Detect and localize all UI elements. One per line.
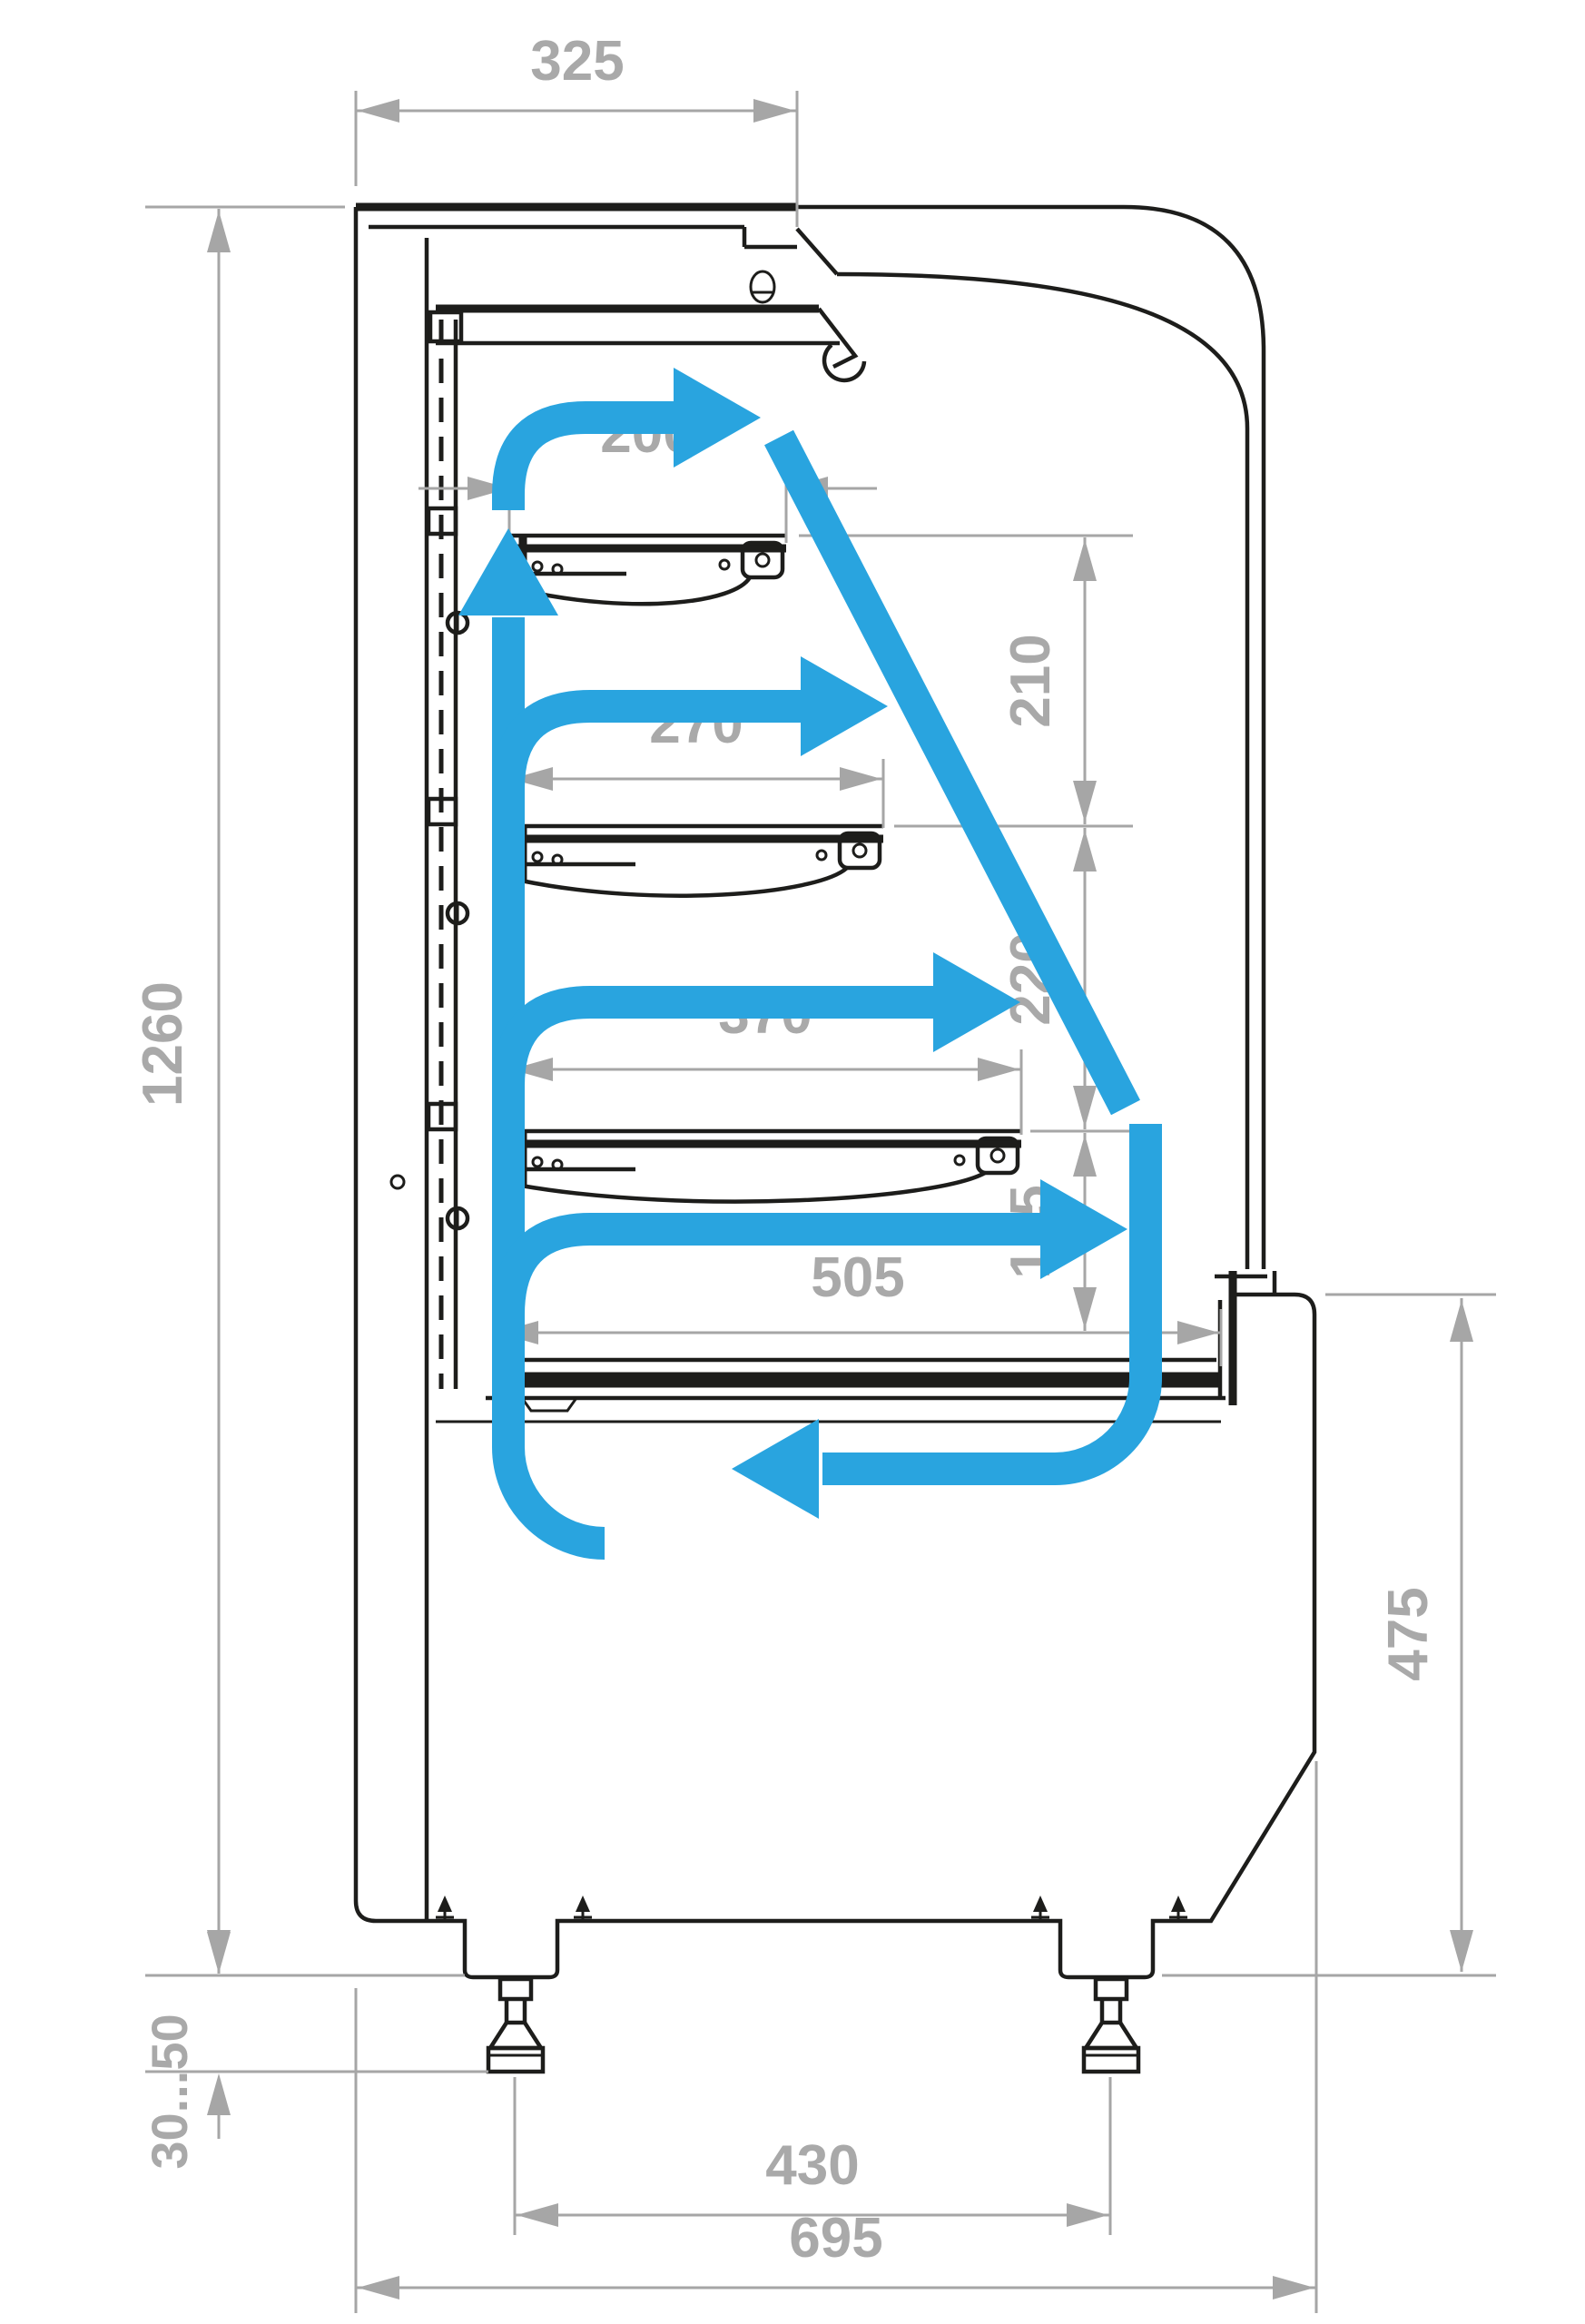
airflow-arrows [458, 368, 1146, 1543]
dim-top-depth-label: 325 [530, 30, 624, 93]
front-glass-outer [797, 207, 1264, 1269]
dim-base-shelf-depth-label: 505 [811, 1246, 904, 1309]
right-foot [1084, 1979, 1138, 2072]
technical-drawing-page: 325 1260 30...50 475 [0, 0, 1585, 2324]
front-frame [1215, 1271, 1275, 1405]
base-deck [436, 1360, 1226, 1422]
front-glass-inner [837, 274, 1247, 1269]
canopy-nose-edge [797, 229, 837, 274]
dim-shelf-1-to-2-label: 210 [999, 634, 1062, 727]
dim-overall-height: 1260 [132, 207, 465, 1975]
dim-leg-spacing-label: 430 [765, 2134, 859, 2197]
dim-overall-depth: 695 [356, 1761, 1316, 2313]
dim-overall-depth-label: 695 [789, 2207, 882, 2270]
dim-leg-adjust-label: 30...50 [141, 2014, 198, 2169]
left-foot [488, 1979, 543, 2072]
dim-base-shelf-depth: 505 [495, 1246, 1221, 1366]
dim-top-depth: 325 [356, 30, 797, 227]
dim-leg-adjust: 30...50 [141, 1908, 488, 2170]
dimension-annotations: 325 1260 30...50 475 [132, 30, 1496, 2313]
dim-overall-height-label: 1260 [132, 981, 194, 1107]
top-lid-inner [369, 227, 797, 247]
display-case-cross-section-drawing: 325 1260 30...50 475 [0, 0, 1585, 2324]
canopy-screw-icon [751, 271, 774, 302]
back-wall-hole [391, 1176, 404, 1188]
flange-pins [436, 1896, 1187, 1921]
dim-shelf-1-to-2: 210 [999, 537, 1097, 824]
dim-front-base-height-label: 475 [1377, 1587, 1440, 1680]
